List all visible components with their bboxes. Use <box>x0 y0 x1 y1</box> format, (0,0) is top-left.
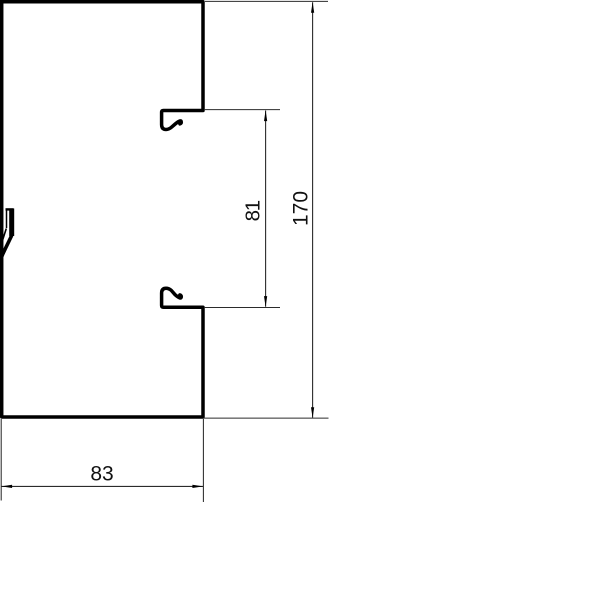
svg-text:170: 170 <box>289 191 312 226</box>
svg-text:81: 81 <box>242 200 265 221</box>
svg-text:83: 83 <box>90 462 113 485</box>
